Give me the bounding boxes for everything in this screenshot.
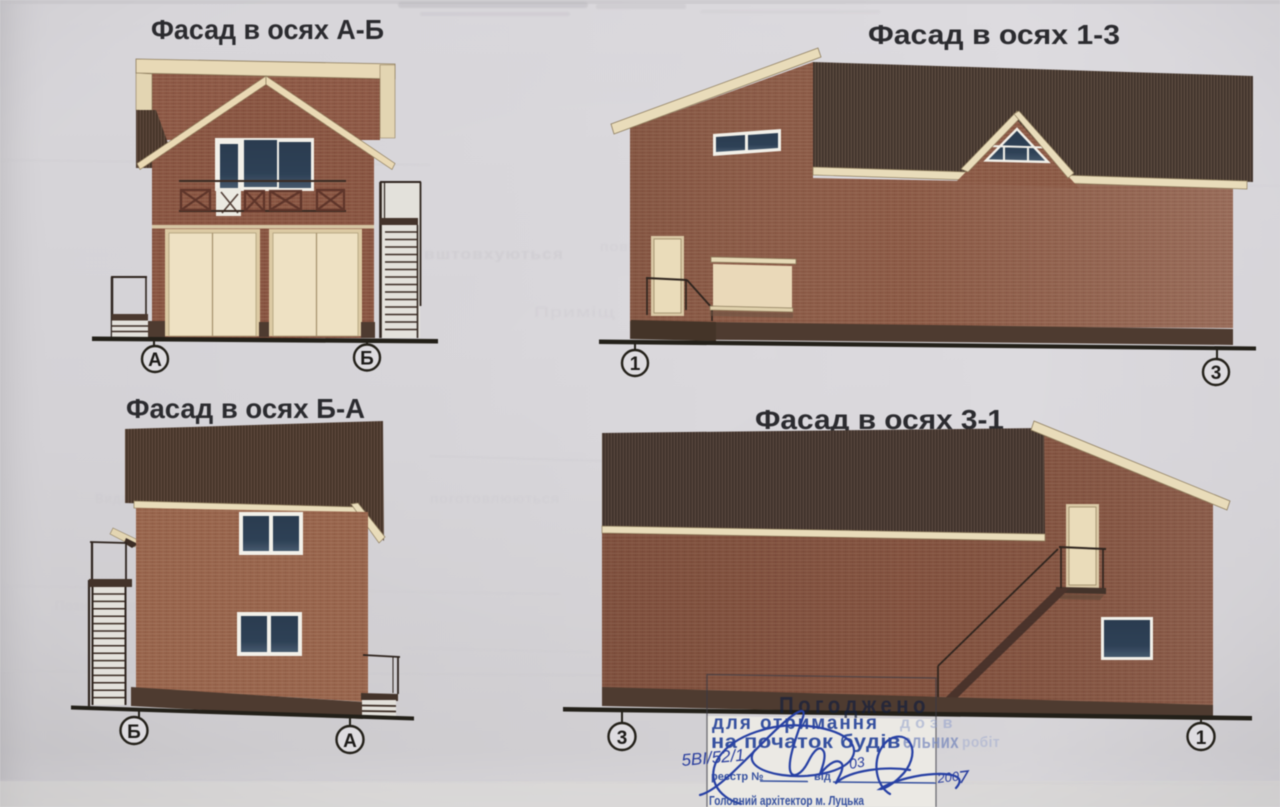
svg-text:3: 3 [1211,363,1222,384]
svg-text:1: 1 [1196,728,1207,749]
svg-text:Б: Б [360,349,374,370]
svg-text:робіт: робіт [962,734,1000,751]
svg-text:3: 3 [617,728,628,749]
svg-text:реєстр №: реєстр № [711,771,763,783]
svg-text:А: А [148,350,162,371]
svg-text:поготовлюються: поготовлюються [430,491,560,506]
svg-text:1: 1 [630,354,641,375]
svg-text:Б: Б [127,722,141,743]
svg-text:Головний архітектор м. Луцька: Головний архітектор м. Луцька [709,794,865,807]
svg-text:Фасад в осях 1-3: Фасад в осях 1-3 [868,19,1120,50]
svg-text:дозв: дозв [900,715,958,732]
svg-text:Фасад в осях Б-А: Фасад в осях Б-А [126,393,365,424]
svg-text:вштовхуються: вштовхуються [424,246,564,263]
svg-text:для отримання: для отримання [712,713,879,734]
svg-text:А: А [343,731,357,752]
svg-text:Приміщ: Приміщ [534,304,616,321]
svg-text:Фасад в осях А-Б: Фасад в осях А-Б [151,14,384,45]
svg-text:03: 03 [848,753,866,771]
